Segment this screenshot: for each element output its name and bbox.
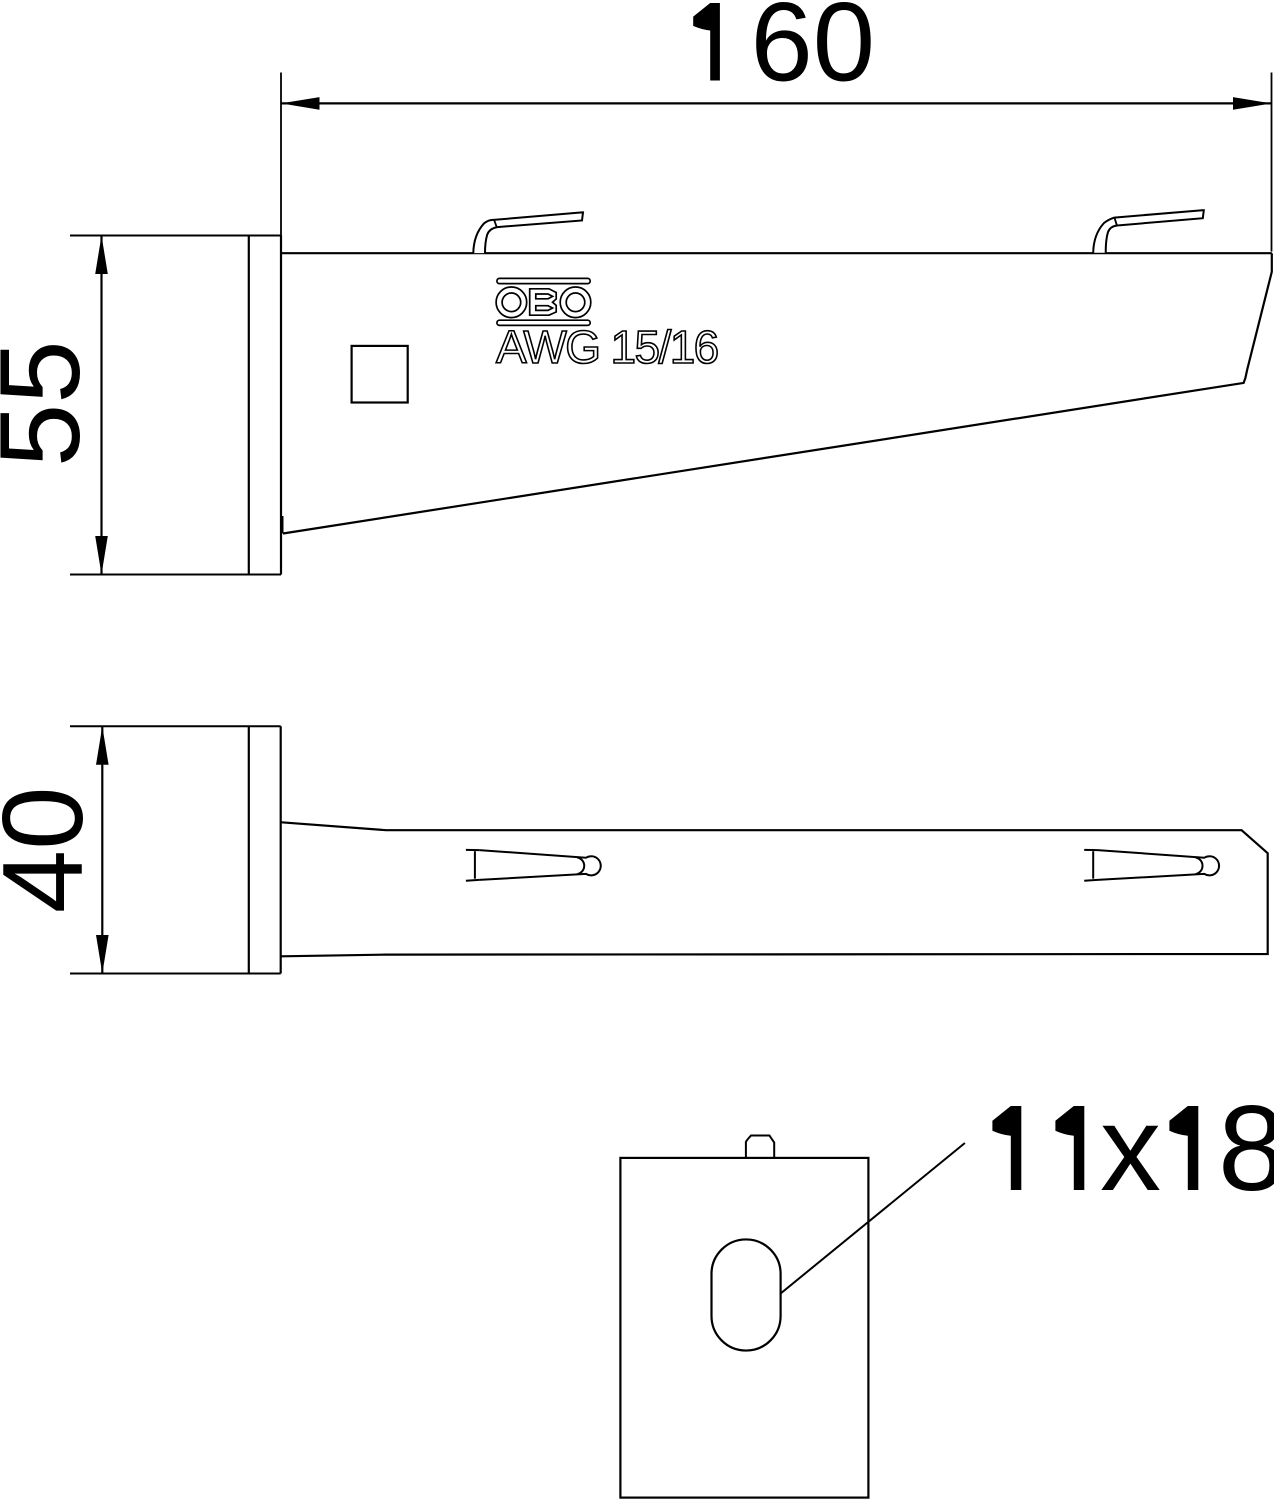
svg-text:8: 8 — [1218, 1080, 1274, 1216]
svg-text:60: 60 — [751, 0, 876, 105]
svg-text:55: 55 — [0, 340, 104, 467]
svg-text:AWG 15/16: AWG 15/16 — [496, 321, 718, 373]
svg-text:40: 40 — [0, 786, 107, 913]
svg-text:x: x — [1100, 1080, 1161, 1216]
